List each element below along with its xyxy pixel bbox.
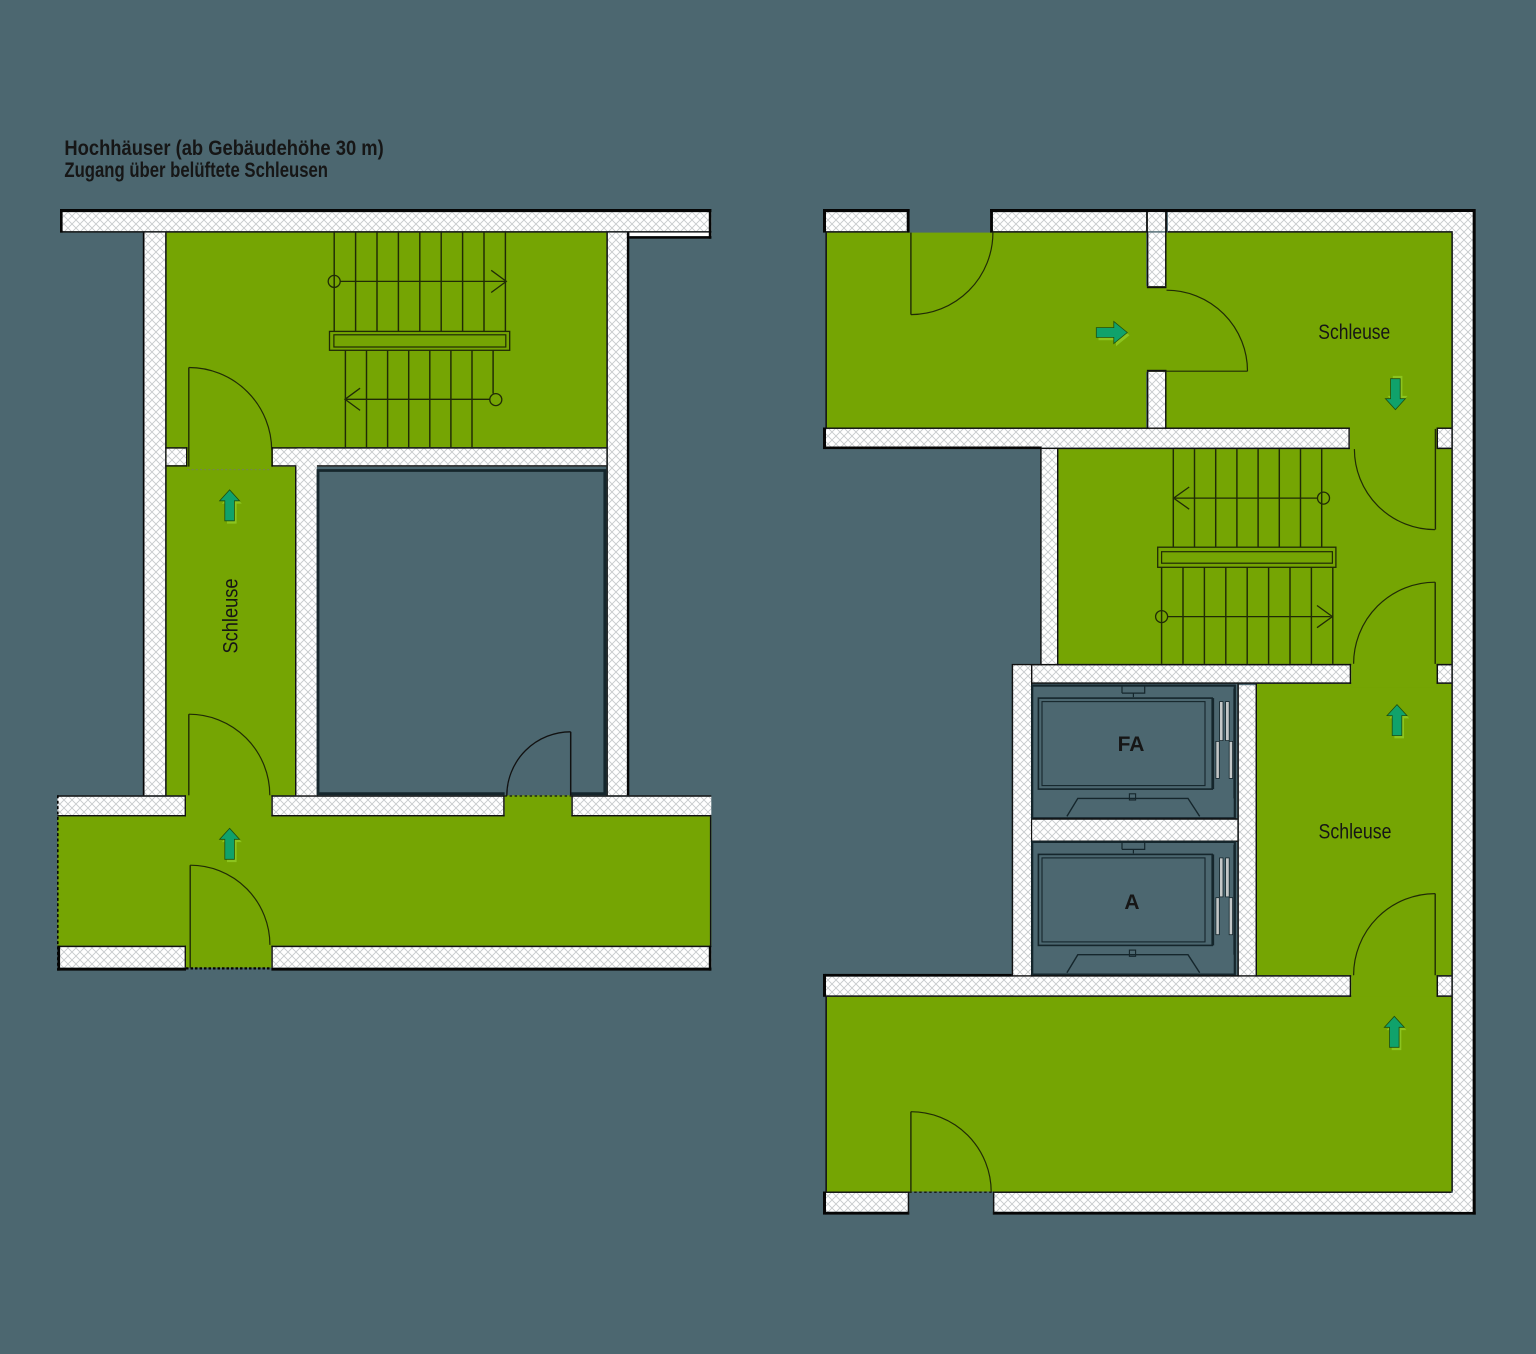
svg-text:Schleuse: Schleuse (1319, 819, 1392, 843)
svg-text:Hochhäuser (ab Gebäudehöhe 30: Hochhäuser (ab Gebäudehöhe 30 m) (64, 137, 383, 160)
svg-text:Zugang über belüftete Schleuse: Zugang über belüftete Schleusen (64, 159, 328, 182)
svg-text:Schleuse: Schleuse (1318, 320, 1390, 344)
svg-text:Schleuse: Schleuse (219, 579, 243, 654)
svg-text:FA: FA (1118, 733, 1145, 756)
svg-text:A: A (1124, 891, 1139, 914)
